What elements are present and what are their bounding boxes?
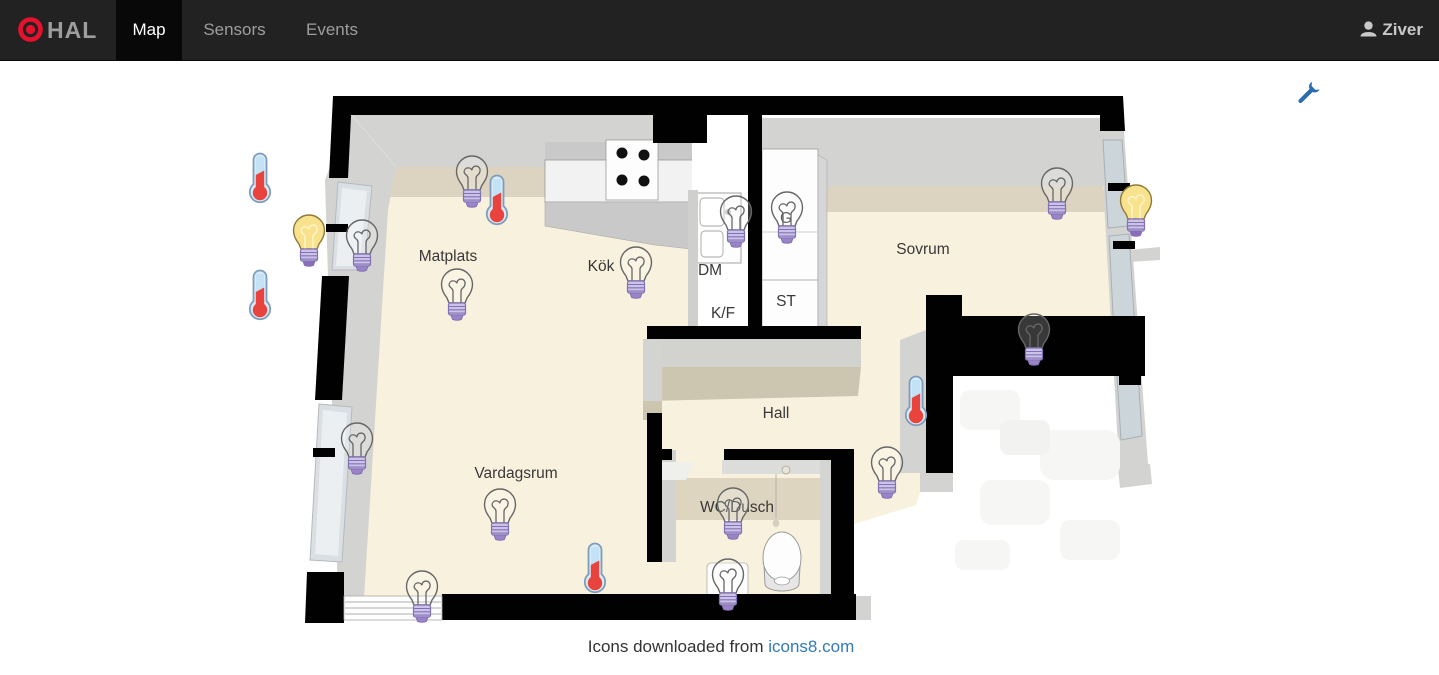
svg-text:Kök: Kök — [588, 258, 615, 275]
svg-text:Sovrum: Sovrum — [896, 241, 949, 258]
svg-text:Hall: Hall — [763, 405, 790, 422]
svg-text:DM: DM — [698, 262, 722, 279]
svg-text:Vardagsrum: Vardagsrum — [474, 465, 557, 482]
svg-text:ST: ST — [776, 293, 796, 310]
svg-text:Matplats: Matplats — [419, 248, 478, 265]
svg-text:K/F: K/F — [711, 305, 735, 322]
